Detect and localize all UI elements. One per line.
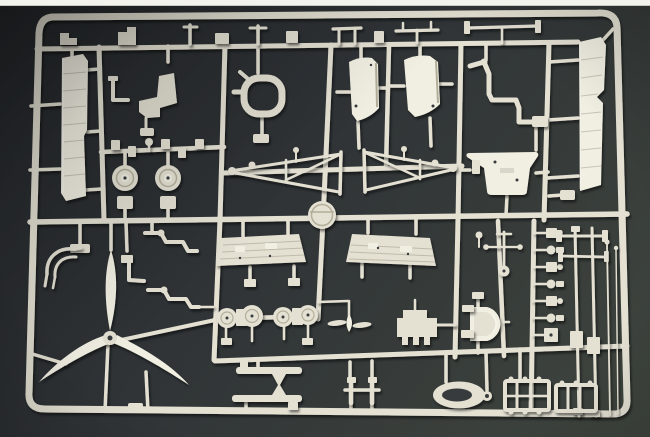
photo-border-strip (0, 0, 650, 6)
pilot-seat (108, 73, 177, 136)
sprue-illustration (0, 0, 650, 437)
wing-spar-bars (232, 360, 302, 410)
main-wheels (112, 165, 181, 191)
l-pipe (113, 80, 128, 100)
three-blade-propeller (39, 250, 189, 385)
small-propeller (318, 301, 372, 332)
rail-v3 (318, 45, 331, 319)
ribbed-flap-left (216, 234, 306, 266)
exhaust-manifold (234, 72, 282, 114)
model-kit-sprue-photo (0, 0, 650, 437)
rail-v1 (99, 47, 104, 220)
cockpit-floor (466, 152, 538, 195)
tail-panel-right (579, 37, 606, 191)
rail-v4 (455, 44, 461, 357)
cowl-panel-right (404, 56, 440, 118)
ribbed-flap-right (346, 234, 436, 266)
oval-pad-ring (433, 382, 492, 409)
rail-v5 (544, 43, 549, 220)
engine-bulkhead (397, 300, 455, 345)
cowl-panel-left (349, 58, 379, 122)
strut-rods (556, 226, 609, 417)
rail-v3b (386, 45, 389, 168)
cabane-frame (345, 377, 379, 403)
wheel-hub-discs (217, 305, 318, 345)
fitting-column (533, 228, 564, 342)
antenna-rods (604, 239, 618, 415)
wishbone-bracket (45, 248, 81, 288)
propeller-blade-up (106, 250, 117, 331)
propeller-blade-right (113, 335, 189, 385)
zigzag-tubes (121, 230, 213, 308)
s-curve-tube (470, 59, 548, 128)
rail-h5 (215, 346, 627, 361)
sprue-gate-disc (308, 201, 336, 229)
wing-panel-left (61, 54, 88, 201)
